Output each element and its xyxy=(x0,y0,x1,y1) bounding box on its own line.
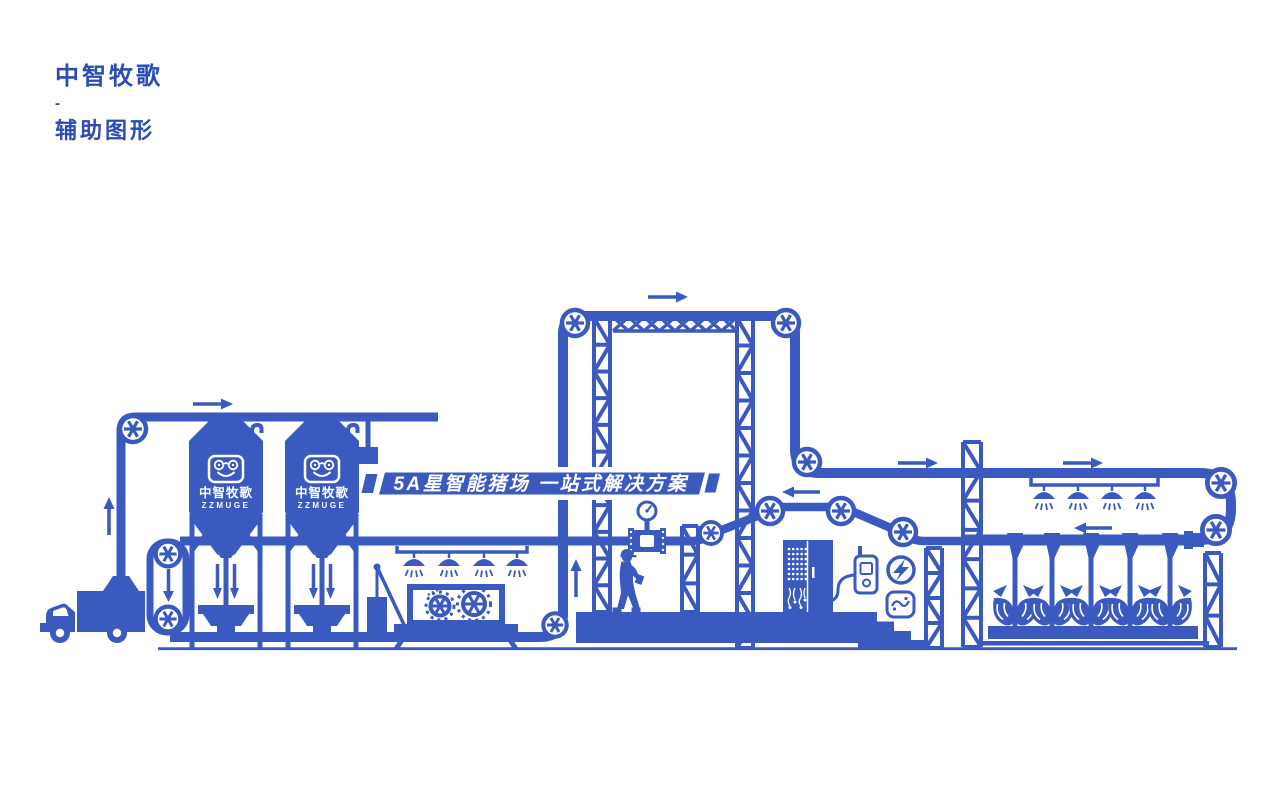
pulley-icon xyxy=(700,522,722,544)
silo-2: 中智牧歌 ZZMUGE xyxy=(285,418,359,648)
arrow-right-icon xyxy=(648,292,688,303)
arrow-right-icon xyxy=(1063,458,1103,469)
sprinkler-icon xyxy=(473,552,495,577)
pulley-icon xyxy=(562,310,588,336)
pig-icon xyxy=(993,585,1014,625)
pressure-gauge-icon xyxy=(638,502,656,520)
pulley-icon xyxy=(1207,469,1234,496)
worker-icon xyxy=(613,549,645,612)
sprinkler-icon xyxy=(1067,485,1089,510)
cabinet-side-tower xyxy=(926,548,942,648)
pulley-icon xyxy=(120,416,146,442)
pulley-icon xyxy=(156,542,181,567)
pulley-icon xyxy=(890,519,916,545)
silo-1: 中智牧歌 ZZMUGE xyxy=(189,418,263,648)
arrow-down-icon xyxy=(163,569,174,602)
arrow-left-icon xyxy=(782,487,820,498)
pig-icon xyxy=(1171,585,1192,625)
sprinkler-icon xyxy=(506,552,528,577)
pig-icon xyxy=(1030,585,1051,625)
feeding-trough xyxy=(988,626,1198,639)
sprinkler-icon xyxy=(1101,485,1123,510)
sprinkler-manifold-left xyxy=(397,546,528,577)
pig-icon xyxy=(1148,585,1169,625)
arrow-left-icon xyxy=(1074,523,1112,534)
pulley-icon xyxy=(156,607,181,632)
arrow-up-icon xyxy=(104,497,115,535)
silo-2-label: 中智牧歌 xyxy=(295,485,349,500)
sprinkler-icon xyxy=(403,552,425,577)
sprinkler-icon xyxy=(438,552,460,577)
barn-right-tower xyxy=(1205,553,1221,647)
pig-icon xyxy=(1108,585,1129,625)
sensor-badge-icon xyxy=(887,592,914,617)
arrow-up-icon xyxy=(571,559,582,597)
banner-text: 5A星智能猪场 一站式解决方案 xyxy=(393,473,689,495)
pulley-icon xyxy=(794,449,820,475)
gantry-left-tower xyxy=(594,318,610,612)
arrow-right-icon xyxy=(193,399,233,410)
truck-icon xyxy=(40,591,145,643)
pulley-icon xyxy=(757,498,783,524)
pulley-icon xyxy=(543,613,566,636)
farm-illustration: 中智牧歌 ZZMUGE 中智牧歌 ZZMUGE xyxy=(0,0,1280,800)
sprinkler-icon xyxy=(1134,485,1156,510)
silo-1-label: 中智牧歌 xyxy=(199,485,253,500)
pulley-icon xyxy=(828,498,854,524)
lightning-icon xyxy=(888,557,914,583)
gantry-right-tower xyxy=(737,318,753,648)
silo-1-sublabel: ZZMUGE xyxy=(202,501,251,510)
pipe-valve xyxy=(628,502,666,554)
pulley-icon xyxy=(773,310,799,336)
trough-base xyxy=(981,641,1209,646)
sprinkler-icon xyxy=(1033,485,1055,510)
work-platform xyxy=(576,612,858,643)
pig-icon xyxy=(1069,585,1090,625)
poster-canvas: 中智牧歌 - 辅助图形 xyxy=(0,0,1280,800)
arrow-right-icon xyxy=(898,458,938,469)
slogan-banner: 5A星智能猪场 一站式解决方案 xyxy=(362,467,721,500)
sprinkler-manifold-right xyxy=(1031,478,1158,510)
silo-2-sublabel: ZZMUGE xyxy=(298,501,347,510)
pulley-icon xyxy=(1202,516,1229,543)
